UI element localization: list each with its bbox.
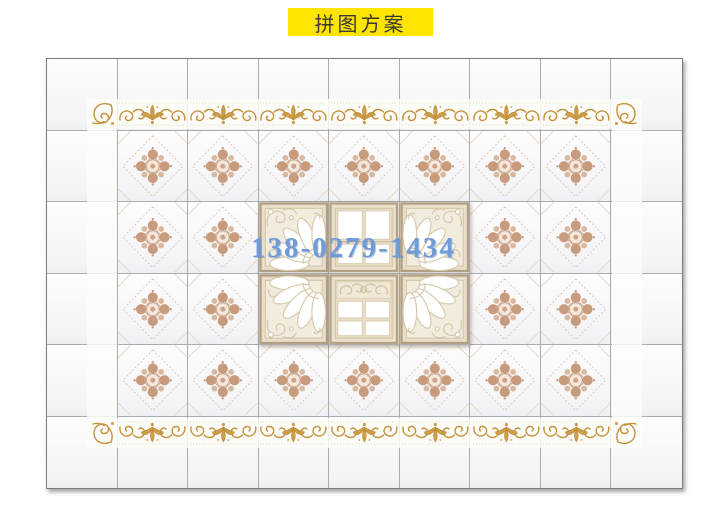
plain-tile [470,59,541,131]
medallion-tile-art [188,131,258,202]
plain-tile [259,59,330,131]
medallion-tile-art [541,345,611,416]
plain-tile [400,417,471,489]
plain-tile [118,59,189,131]
medallion-tile-art [329,345,399,416]
medallion-tile-art [118,345,188,416]
medallion-tile [118,345,189,417]
medallion-tile-art [188,202,258,273]
plain-tile [329,417,400,489]
plain-tile [400,59,471,131]
medallion-tile [329,131,400,203]
tile-grid [47,59,682,488]
medallion-tile [188,274,259,346]
plain-tile [259,417,330,489]
medallion-tile-art [118,202,188,273]
medallion-tile-art [188,345,258,416]
medallion-tile [118,274,189,346]
medallion-tile [400,345,471,417]
medallion-tile-art [259,345,329,416]
window-scroll-pane-tile-art [329,274,399,345]
plain-tile [611,417,682,489]
tile-layout-panel [46,58,683,489]
medallion-tile [329,345,400,417]
medallion-tile [470,274,541,346]
fan-corner-tile-bottom-right [400,274,471,346]
fan-corner-tile-bottom-right-art [400,274,470,345]
medallion-tile [259,345,330,417]
medallion-tile [541,131,612,203]
medallion-tile [259,131,330,203]
plain-tile [611,345,682,417]
fan-corner-tile-bottom-left-art [259,274,329,345]
plain-tile [47,202,118,274]
watermark-phone: 138-0279-1434 [251,232,456,265]
plain-tile [188,59,259,131]
medallion-tile-art [329,131,399,202]
medallion-tile [470,131,541,203]
medallion-tile-art [259,131,329,202]
medallion-tile-art [400,345,470,416]
medallion-tile [541,202,612,274]
fan-corner-tile-bottom-left [259,274,330,346]
medallion-tile [188,202,259,274]
plain-tile [611,131,682,203]
medallion-tile [118,131,189,203]
plain-tile [47,131,118,203]
medallion-tile-art [188,274,258,345]
medallion-tile [470,345,541,417]
medallion-tile-art [470,274,540,345]
plain-tile [611,59,682,131]
medallion-tile [118,202,189,274]
plan-title-banner: 拼图方案 [288,8,433,36]
plain-tile [541,417,612,489]
plain-tile [118,417,189,489]
plain-tile [47,59,118,131]
plain-tile [470,417,541,489]
medallion-tile-art [470,131,540,202]
plain-tile [329,59,400,131]
medallion-tile-art [470,345,540,416]
window-scroll-pane-tile [329,274,400,346]
medallion-tile-art [541,131,611,202]
medallion-tile [541,274,612,346]
medallion-tile [541,345,612,417]
plain-tile [541,59,612,131]
plain-tile [611,274,682,346]
medallion-tile [470,202,541,274]
medallion-tile-art [118,131,188,202]
plain-tile [47,417,118,489]
medallion-tile-art [470,202,540,273]
plain-tile [47,345,118,417]
medallion-tile-art [118,274,188,345]
plan-title-label: 拼图方案 [315,8,407,37]
medallion-tile-art [541,274,611,345]
medallion-tile [188,345,259,417]
plain-tile [611,202,682,274]
medallion-tile-art [400,131,470,202]
medallion-tile [400,131,471,203]
plain-tile [47,274,118,346]
medallion-tile-art [541,202,611,273]
medallion-tile [188,131,259,203]
plain-tile [188,417,259,489]
